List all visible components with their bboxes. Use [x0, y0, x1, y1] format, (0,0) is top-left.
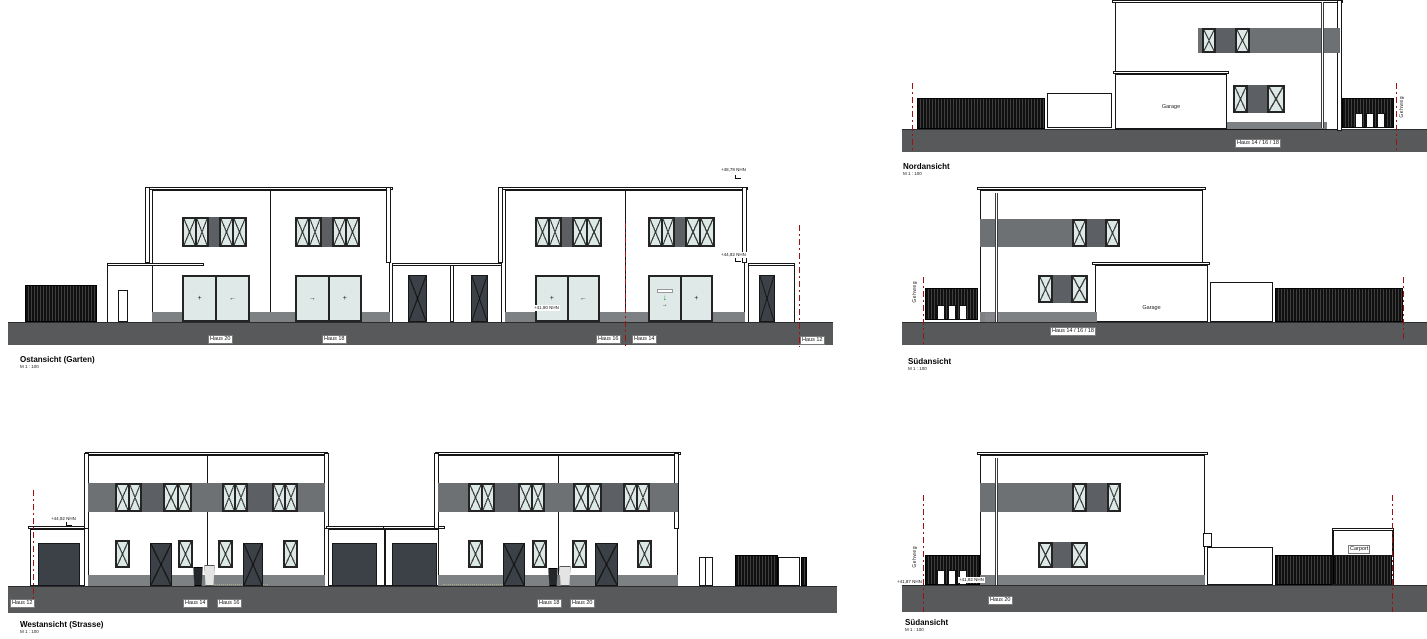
view-scale: M 1 : 100 [20, 364, 39, 369]
garage-label: Garage [1095, 305, 1208, 311]
elevation-drawing-sheet: + ← → + + ← [0, 0, 1427, 639]
window-pane [537, 219, 548, 245]
window-pane [625, 485, 636, 510]
window-pane [297, 219, 308, 245]
ground-strip [902, 322, 1427, 345]
upper-window [623, 483, 650, 512]
party-wall-line [270, 190, 271, 322]
boundary-line [1392, 495, 1393, 612]
window-pane [470, 485, 481, 510]
boundary-line [33, 490, 34, 607]
upper-window [573, 483, 602, 512]
window-pane [117, 485, 128, 510]
lower-window [1038, 542, 1053, 568]
house-badge: Haus 20 [570, 599, 595, 608]
level-annotation: +44,92 NHN [720, 252, 747, 258]
sliding-door-leaf: + [537, 277, 567, 320]
entry-door [408, 275, 427, 322]
corner-trim [145, 187, 150, 263]
side-wall [1047, 93, 1112, 128]
upper-window [1107, 483, 1121, 512]
window-pane [310, 219, 321, 245]
garage-door [392, 543, 437, 586]
garage-roof-slab [1092, 262, 1210, 265]
window-pane [221, 219, 232, 245]
sliding-door-leaf: ← [569, 277, 599, 320]
ground-strip [902, 129, 1427, 152]
house-badge: Haus 18 [537, 599, 562, 608]
window-pane [184, 219, 195, 245]
upper-window [468, 483, 495, 512]
level-annotation: +41,90 NHN [533, 305, 560, 311]
window-pane [1040, 544, 1051, 566]
house-badge: Haus 20 [988, 596, 1013, 605]
sliding-door-leaf: + [330, 277, 361, 320]
elevation-view-ostansicht: + ← → + + ← [8, 165, 838, 375]
window-spacer-panel [1087, 219, 1105, 247]
view-scale: M 1 : 100 [905, 627, 924, 632]
upper-window [163, 483, 192, 512]
boundary-fence [1275, 288, 1403, 322]
entrance-arrow-icon: ↓ [663, 294, 667, 302]
window-pane [1073, 544, 1086, 566]
view-title: Nordansicht [903, 162, 950, 171]
entry-door [243, 543, 263, 586]
sliding-door-leaf: → [297, 277, 328, 320]
window-pane [589, 485, 601, 510]
lower-window [637, 540, 652, 568]
window-pane [588, 219, 600, 245]
parapet-cap [149, 187, 393, 190]
lower-window [283, 540, 298, 568]
lower-window [1233, 85, 1248, 113]
wall-edge-line [107, 263, 108, 322]
lower-window [572, 540, 587, 568]
fence-post [948, 305, 956, 320]
upper-window [535, 217, 562, 247]
entry-door [759, 275, 775, 322]
lower-window [1267, 85, 1285, 113]
view-title: Südansicht [905, 618, 948, 627]
parapet-cap [977, 452, 1208, 455]
house-badge: Haus 16 [596, 335, 621, 344]
window-spacer-panel [142, 483, 163, 512]
view-scale: M 1 : 100 [20, 629, 39, 634]
upper-window [648, 217, 675, 247]
fence-post [1366, 113, 1374, 128]
slide-direction-icon: → [662, 302, 668, 308]
window-pane [197, 219, 208, 245]
window-pane [1074, 221, 1085, 245]
lower-window [468, 540, 483, 568]
upper-window [115, 483, 142, 512]
window-spacer-panel [1053, 275, 1071, 303]
garage-roof-slab [28, 526, 87, 529]
window-pane [286, 485, 296, 510]
window-pane [1204, 30, 1214, 51]
window-pane [334, 219, 345, 245]
boundary-line [923, 495, 924, 612]
window-spacer-panel [1053, 542, 1071, 568]
side-wall [1210, 282, 1273, 322]
upper-window [1235, 28, 1250, 53]
fence-post [1355, 113, 1363, 128]
boundary-fence [917, 98, 1045, 129]
house-badge: Haus 12 [800, 336, 825, 345]
sliding-door-leaf: + [184, 277, 215, 320]
upper-window [1072, 483, 1087, 512]
view-title: Ostansicht (Garten) [20, 355, 95, 364]
plinth-strip [1227, 122, 1327, 129]
fence-post [948, 570, 956, 585]
gate-frame-line [705, 557, 706, 586]
sidewalk-label: Gehweg [912, 281, 918, 303]
window-spacer-panel [1087, 483, 1107, 512]
upper-window [182, 217, 209, 247]
window-pane [1237, 30, 1248, 51]
window-pane [687, 219, 699, 245]
house-badge: Haus 14 / 16 / 18 [1235, 139, 1281, 148]
garage-wall [1115, 74, 1227, 129]
upper-window [1202, 28, 1216, 53]
house-facade [980, 455, 1205, 585]
wall-step [1203, 533, 1212, 547]
window-pane [130, 485, 141, 510]
window-pane [1073, 277, 1086, 301]
trash-bin [548, 568, 558, 586]
bin-enclosure-fence [25, 285, 97, 322]
wall-divider [450, 265, 454, 322]
window-spacer-panel [1216, 28, 1235, 53]
window-pane [1109, 485, 1119, 510]
corner-trim [498, 187, 503, 263]
upper-window [1072, 219, 1087, 247]
sidewalk-label: Gehweg [1399, 96, 1405, 118]
sidewalk-label: Gehweg [912, 546, 918, 568]
elevation-view-nordansicht: Garage Gehweg Haus 14 / 16 / 18 Nordansi… [900, 0, 1427, 182]
entry-door [595, 543, 618, 586]
house-badge: Haus 18 [322, 335, 347, 344]
upper-window [572, 217, 602, 247]
window-spacer-panel [602, 483, 623, 512]
gate-post [118, 290, 128, 322]
house-badge: Haus 14 [183, 599, 208, 608]
boundary-line [923, 277, 924, 345]
elevation-view-westansicht: +44,92 NHN [8, 450, 846, 639]
ground-strip [902, 585, 1427, 612]
ground-strip [8, 322, 833, 345]
entry-door [471, 275, 488, 322]
window-pane [575, 485, 587, 510]
window-pane [347, 219, 358, 245]
trash-bin [204, 565, 215, 586]
link-roof-slab [748, 263, 795, 266]
window-pane [574, 219, 586, 245]
boundary-line [912, 83, 913, 150]
fence-post [937, 305, 945, 320]
boundary-fence [1275, 555, 1333, 585]
window-pane [701, 219, 713, 245]
lower-window [1071, 275, 1088, 303]
house-badge: Haus 14 / 16 / 18 [1050, 327, 1096, 336]
garage-wall [1095, 265, 1208, 322]
house-badge: Haus 14 [632, 335, 657, 344]
view-scale: M 1 : 100 [908, 366, 927, 371]
window-pane [236, 485, 246, 510]
view-title: Westansicht (Strasse) [20, 620, 103, 629]
garage-door [332, 543, 377, 586]
window-spacer-panel [209, 217, 219, 247]
level-annotation: +44,92 NHN [50, 516, 77, 522]
elevation-view-suedansicht-unten: Carport Gehweg +41,87 NHN +41,92 NHN Hau… [895, 450, 1427, 639]
boundary-line [625, 223, 626, 347]
garage-roof-slab [1113, 71, 1229, 74]
fence-post [1377, 113, 1385, 128]
wall-edge-line [794, 263, 795, 322]
window-pane [1269, 87, 1283, 111]
house-badge: Haus 12 [10, 599, 35, 608]
carport-label: Carport [1348, 545, 1370, 554]
garage-label: Garage [1115, 104, 1227, 110]
upper-window [685, 217, 715, 247]
window-spacer-panel [248, 483, 272, 512]
window-spacer-panel [562, 217, 572, 247]
side-roof-slab [107, 263, 204, 266]
window-pane [663, 219, 674, 245]
window-pane [534, 542, 545, 566]
window-pane [224, 485, 234, 510]
window-spacer-panel [1248, 85, 1267, 113]
boundary-line [1396, 83, 1397, 150]
level-annotation: +41,87 NHN [896, 579, 923, 585]
upper-window [295, 217, 322, 247]
patio-sliding-door: → + [295, 275, 362, 322]
entry-door [150, 543, 172, 586]
window-pane [1040, 277, 1051, 301]
boundary-line [799, 225, 800, 347]
window-pane [483, 485, 494, 510]
link-roof-slab [392, 263, 502, 266]
window-pane [1107, 221, 1118, 245]
lower-window [218, 540, 233, 568]
parapet-cap [977, 187, 1206, 190]
window-pane [165, 485, 177, 510]
wall-edge-line [748, 263, 749, 322]
lower-window [1071, 542, 1088, 568]
gate-frame [699, 557, 713, 586]
level-annotation: +41,92 NHN [958, 577, 985, 583]
corner-trim [386, 187, 391, 263]
window-pane [650, 219, 661, 245]
carport-frame [1332, 528, 1394, 585]
lower-window [532, 540, 547, 568]
window-pane [285, 542, 296, 566]
house-badge: Haus 20 [208, 335, 233, 344]
level-tick [735, 175, 741, 179]
sliding-door-leaf: ↓ → [650, 277, 680, 320]
view-title: Südansicht [908, 357, 951, 366]
window-pane [520, 485, 531, 510]
view-scale: M 1 : 100 [903, 171, 922, 176]
window-pane [574, 542, 585, 566]
window-pane [180, 542, 191, 566]
window-pane [274, 485, 284, 510]
window-spacer-panel [322, 217, 332, 247]
window-spacer-panel [495, 483, 518, 512]
boundary-line [1403, 277, 1404, 340]
level-annotation: +48,78 NHN [720, 167, 747, 173]
downspout [995, 193, 998, 322]
level-tick [66, 522, 72, 526]
lower-window [115, 540, 130, 568]
corner-trim [1337, 0, 1342, 131]
wall-edge-line [392, 263, 393, 322]
ground-strip [8, 586, 837, 613]
level-tick [735, 258, 741, 262]
window-pane [179, 485, 191, 510]
sliding-door-leaf: + [682, 277, 712, 320]
window-pane [470, 542, 481, 566]
trash-bin [559, 566, 571, 586]
garage-roof-slab [326, 526, 387, 529]
window-pane [533, 485, 544, 510]
fence-post [959, 305, 967, 320]
elevation-view-suedansicht-mitte: Garage Gehweg Haus 14 / 16 / 18 Südansic… [900, 185, 1427, 375]
upper-window [1105, 219, 1120, 247]
lower-window [1038, 275, 1053, 303]
upper-window [219, 217, 247, 247]
entrance-marker: ↓ → [657, 289, 673, 308]
window-pane [1074, 485, 1085, 510]
window-pane [639, 542, 650, 566]
drainage-dotted-line [443, 584, 503, 585]
trash-bin [193, 567, 203, 586]
upper-window [222, 483, 248, 512]
downspout [1321, 2, 1324, 128]
window-pane [220, 542, 231, 566]
window-pane [550, 219, 561, 245]
upper-window [272, 483, 298, 512]
window-pane [234, 219, 245, 245]
window-pane [117, 542, 128, 566]
wall-edge-line [501, 263, 502, 322]
party-wall-line [558, 455, 559, 586]
patio-sliding-door: + ← [535, 275, 600, 322]
sliding-door-leaf: ← [217, 277, 248, 320]
lower-window [178, 540, 193, 568]
patio-sliding-door: ↓ → + [648, 275, 713, 322]
house-badge: Haus 16 [217, 599, 242, 608]
side-wall [1207, 547, 1273, 585]
bin-enclosure-door [778, 557, 800, 586]
patio-sliding-door: + ← [182, 275, 250, 322]
upper-window [332, 217, 360, 247]
upper-window [518, 483, 545, 512]
window-pane [638, 485, 649, 510]
plinth-strip [980, 575, 1205, 585]
garage-door [38, 543, 80, 586]
bin-enclosure-post [801, 557, 807, 586]
downspout [995, 458, 998, 585]
fence-post [937, 570, 945, 585]
window-spacer-panel [675, 217, 685, 247]
window-pane [1235, 87, 1246, 111]
entry-door [503, 543, 525, 586]
parapet-cap [1112, 0, 1343, 3]
bin-enclosure-fence [735, 555, 778, 586]
